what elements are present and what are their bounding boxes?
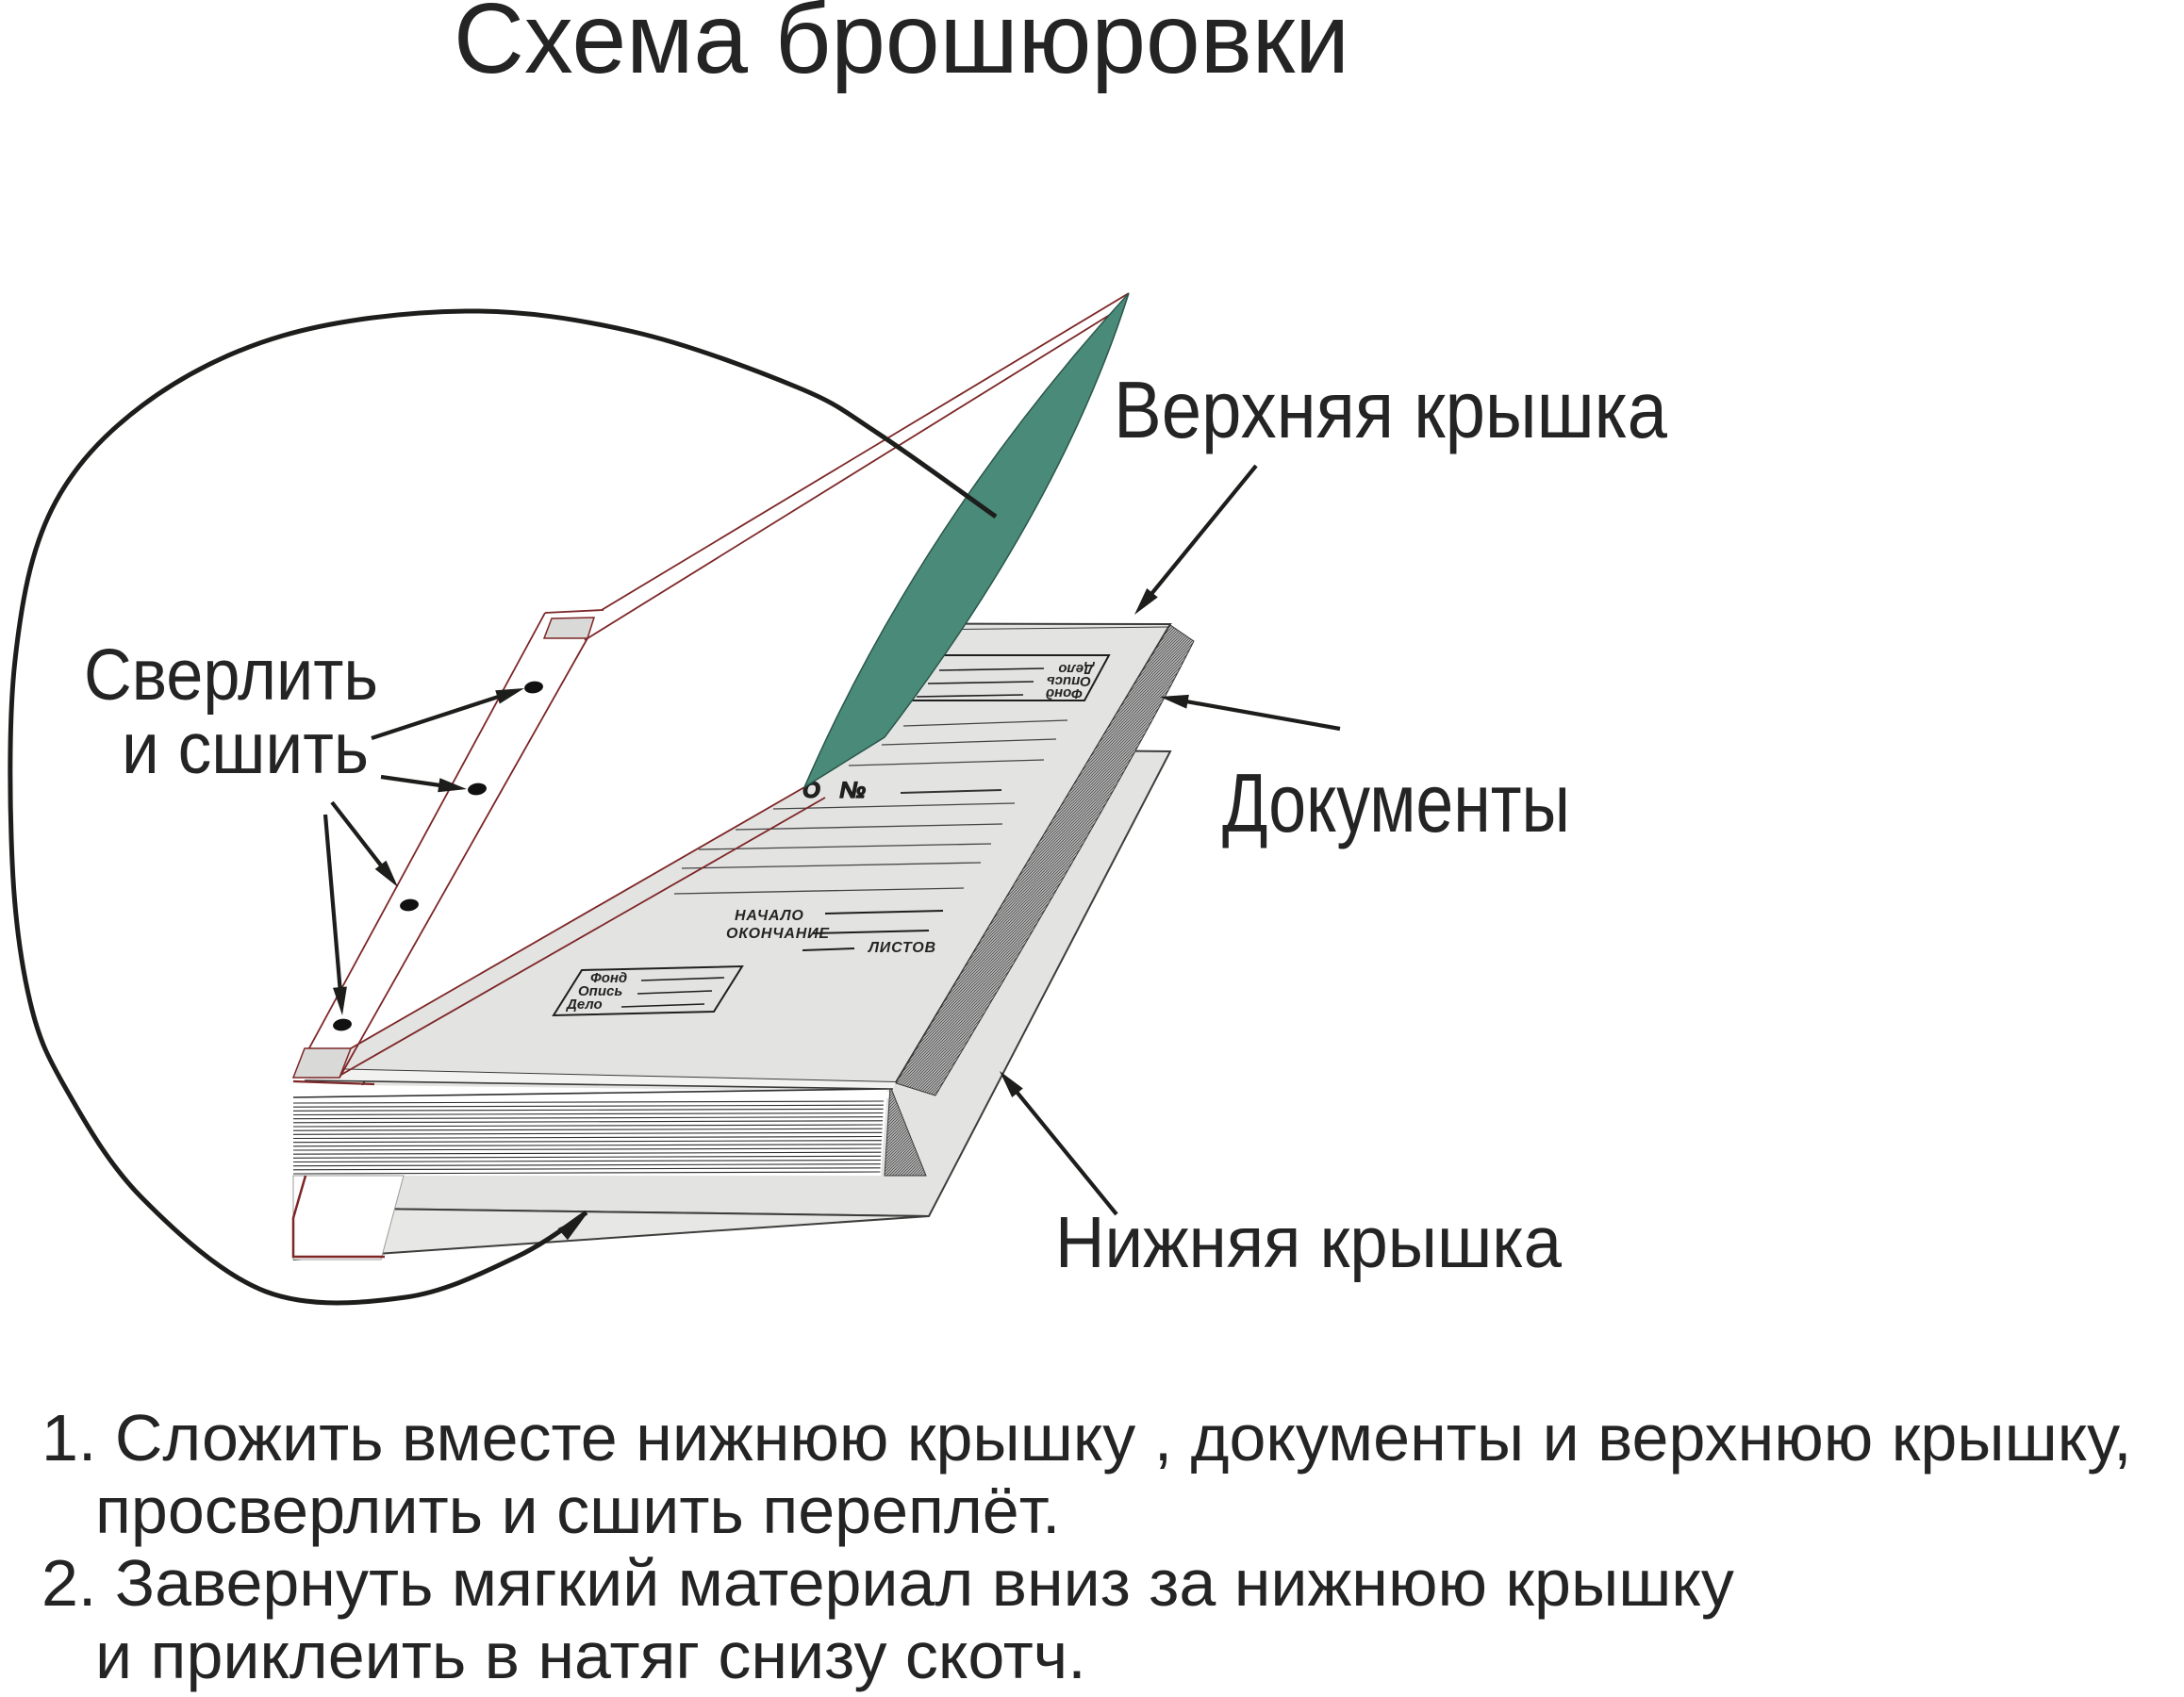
svg-text:1. Сложить вместе нижнюю крышк: 1. Сложить вместе нижнюю крышку , докуме… — [41, 1401, 2132, 1475]
svg-text:Нижняя крышка: Нижняя крышка — [1055, 1202, 1562, 1283]
svg-text:Верхняя крышка: Верхняя крышка — [1114, 366, 1668, 455]
svg-text:и приклеить в натяг снизу скот: и приклеить в натяг снизу скотч. — [95, 1619, 1086, 1692]
svg-text:просверлить и сшить переплёт.: просверлить и сшить переплёт. — [95, 1474, 1060, 1547]
svg-text:Сверлить: Сверлить — [84, 634, 378, 716]
svg-text:Дело: Дело — [565, 997, 603, 1013]
svg-text:и сшить: и сшить — [122, 708, 369, 789]
svg-text:ЛИСТОВ: ЛИСТОВ — [868, 940, 936, 956]
svg-text:НАЧАЛО: НАЧАЛО — [735, 908, 804, 924]
svg-text:Схема брошюровки: Схема брошюровки — [454, 0, 1349, 94]
svg-text:2. Завернуть мягкий материал в: 2. Завернуть мягкий материал вниз за ниж… — [41, 1546, 1734, 1620]
svg-text:Фонд: Фонд — [1046, 685, 1083, 701]
svg-text:Документы: Документы — [1222, 756, 1570, 849]
